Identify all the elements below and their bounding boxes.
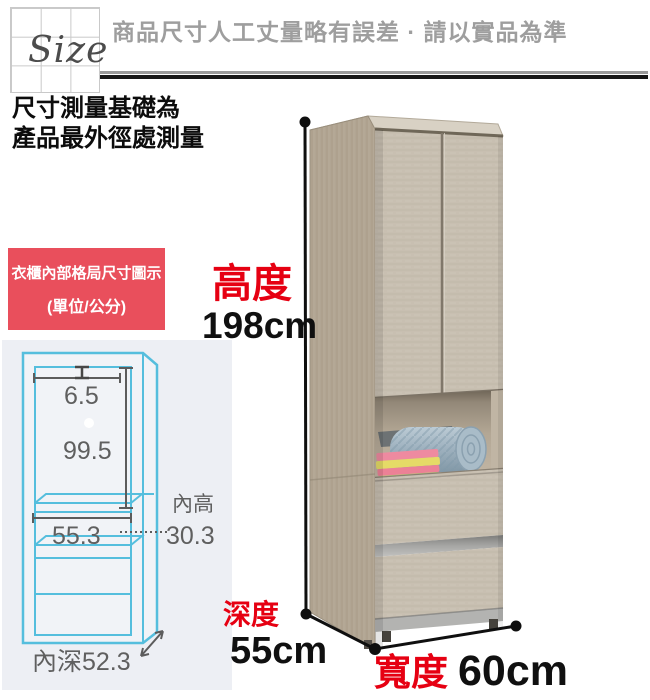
interior-diagram-drawing: 6.5 99.5 55.3 內高 30.3 內深52.3 <box>2 340 232 690</box>
interior-layout-unit-note: (單位/公分) <box>8 293 165 317</box>
product-size-page: Size 商品尺寸人工丈量略有誤差 · 請以實品為準 尺寸測量基礎為 產品最外徑… <box>0 0 650 700</box>
interior-layout-title: 衣櫃內部格局尺寸圖示 <box>8 262 165 283</box>
drawer-2 <box>375 547 503 619</box>
header-rule-gray <box>100 71 648 74</box>
measure-note: 尺寸測量基礎為 產品最外徑處測量 <box>12 94 204 154</box>
width-dimension: 寬度60cm <box>374 650 568 693</box>
inner-height-label: 內高 <box>172 493 214 516</box>
width-label: 寬度 <box>374 652 448 693</box>
width-value: 60cm <box>458 647 568 695</box>
header-rule-black <box>100 75 648 79</box>
front-left-foot <box>382 631 391 642</box>
rod-dot <box>84 418 94 428</box>
inner-width-value: 55.3 <box>52 522 101 550</box>
top-gap-value: 6.5 <box>64 382 99 410</box>
height-value: 198cm <box>202 307 317 344</box>
height-label: 高度 <box>212 264 292 304</box>
interior-diagram-panel: 6.5 99.5 55.3 內高 30.3 內深52.3 <box>2 340 232 690</box>
depth-value: 55cm <box>230 632 327 670</box>
header-disclaimer: 商品尺寸人工丈量略有誤差 · 請以實品為準 <box>112 13 567 47</box>
interior-layout-title-box: 衣櫃內部格局尺寸圖示 (單位/公分) <box>8 248 165 330</box>
front-left-edge-shade <box>375 129 383 650</box>
hanging-height-value: 99.5 <box>63 437 112 465</box>
height-measure-line <box>305 122 306 614</box>
height-line-bottom-dot <box>301 609 312 620</box>
inner-depth-value: 內深52.3 <box>32 648 131 676</box>
wardrobe-photo <box>270 100 590 670</box>
wardrobe-drawers <box>364 469 503 649</box>
open-shelf-niche <box>375 390 503 482</box>
depth-label: 深度 <box>223 601 279 629</box>
size-label: Size <box>28 30 108 71</box>
inner-height-value: 30.3 <box>166 522 215 550</box>
height-line-top-dot <box>300 117 311 128</box>
front-right-edge-shade <box>498 136 503 628</box>
measure-note-line2: 產品最外徑處測量 <box>12 124 204 154</box>
wardrobe-doors <box>375 129 503 398</box>
measure-note-line1: 尺寸測量基礎為 <box>12 94 204 124</box>
width-line-right-dot <box>511 621 522 632</box>
wardrobe-side-panel <box>310 116 375 650</box>
size-grid-logo: Size <box>10 7 100 93</box>
